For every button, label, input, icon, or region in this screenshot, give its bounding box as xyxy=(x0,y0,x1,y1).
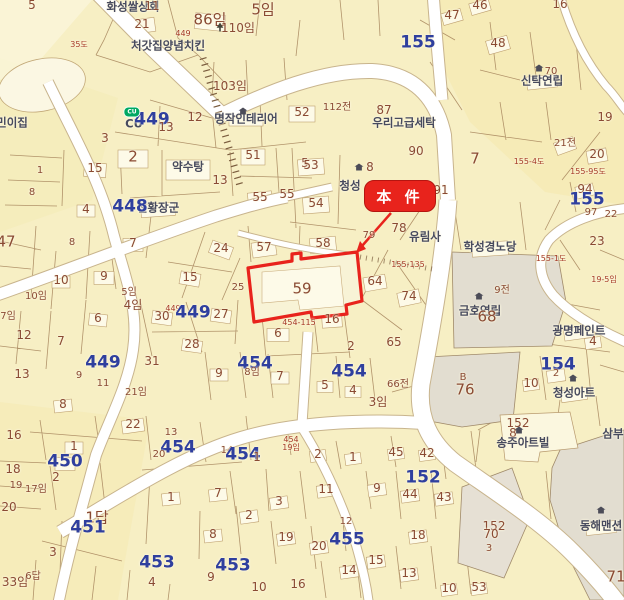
parcel-number-label: 16 xyxy=(6,429,21,441)
parcel-number-label: 8 xyxy=(69,238,75,248)
road-number-label: 35도 xyxy=(70,41,88,49)
house-icon xyxy=(569,375,578,382)
parcel-number-label: 17임 xyxy=(25,485,47,495)
parcel-number-label: 47 xyxy=(444,9,459,21)
parcel-number-label: 46 xyxy=(472,0,487,11)
parcel-number-label: 9전 xyxy=(494,286,510,296)
block-number-label: 455 xyxy=(329,532,365,549)
parcel-number-label: 20 xyxy=(153,450,166,460)
parcel-number-label: 1 xyxy=(167,491,175,503)
parcel-number-label: 9 xyxy=(373,482,381,494)
parcel-number-label: 28 xyxy=(184,338,199,350)
parcel-number-label: 79 xyxy=(363,231,376,241)
parcel-number-label: 70 xyxy=(545,67,558,77)
parcel-number-label: 2 xyxy=(314,448,322,460)
parcel-number-label: 59 xyxy=(292,282,311,297)
parcel-number-label: 19 xyxy=(278,531,293,543)
road-number-label: 19-5임 xyxy=(591,276,617,284)
parcel-number-label: 110임 xyxy=(221,22,255,34)
parcel-number-label: 23 xyxy=(589,235,604,247)
block-number-label: 450 xyxy=(47,454,83,471)
place-name-label: 삼부 xyxy=(602,428,623,440)
parcel-number-label: 16 xyxy=(552,0,567,10)
parcel-number-label: 8임 xyxy=(244,368,260,378)
place-name-label: 처갓집양념치킨 xyxy=(131,40,205,52)
parcel-number-label: 10 xyxy=(53,274,68,286)
parcel-number-label: 4 xyxy=(589,335,597,347)
parcel-number-label: 3 xyxy=(486,544,492,554)
parcel-number-label: 1 xyxy=(253,451,261,463)
parcel-number-label: 20 xyxy=(1,501,16,513)
parcel-number-label: 3 xyxy=(49,546,57,558)
parcel-number-label: 5 xyxy=(28,0,36,11)
parcel-number-label: 58 xyxy=(315,237,330,249)
parcel-number-label: 76 xyxy=(455,383,474,398)
parcel-number-label: 24 xyxy=(213,242,228,254)
parcel-number-label: 2 xyxy=(245,509,253,521)
parcel-number-label: 18 xyxy=(410,529,425,541)
parcel-number-label: 10 xyxy=(251,581,266,593)
parcel-number-label: 10 xyxy=(441,582,456,594)
road-number-label: 449 xyxy=(175,30,190,38)
parcel-number-label: 7 xyxy=(276,370,284,382)
parcel-number-label: 20 xyxy=(311,540,326,552)
block-number-label: 155 xyxy=(400,35,436,52)
parcel-number-label: 9 xyxy=(100,270,108,282)
parcel-number-label: 1 xyxy=(349,451,357,463)
parcel-number-label: 4 xyxy=(82,203,90,215)
parcel-number-label: 16 xyxy=(324,313,339,325)
parcel-number-label: 31 xyxy=(144,355,159,367)
parcel-number-label: 57 xyxy=(256,241,271,253)
parcel-number-label: 13 xyxy=(165,428,178,438)
parcel-number-label: 55 xyxy=(279,188,294,200)
parcel-number-label: 5 xyxy=(321,379,329,391)
place-name-label: 청성아트 xyxy=(553,387,595,399)
parcel-number-label: 6 xyxy=(274,327,282,339)
parcel-number-label: 71 xyxy=(606,570,624,585)
parcel-number-label: 11 xyxy=(97,379,110,389)
block-number-label: 449 xyxy=(175,305,211,322)
parcel-number-label: 8 xyxy=(366,161,374,173)
block-number-label: 449 xyxy=(85,355,121,372)
parcel-number-label: 8 xyxy=(209,528,217,540)
parcel-number-label: 2 xyxy=(553,369,559,379)
parcel-number-label: 30 xyxy=(154,310,169,322)
house-icon xyxy=(597,507,606,514)
parcel-number-label: 20 xyxy=(589,148,604,160)
parcel-number-label: 6답 xyxy=(25,572,41,582)
house-icon xyxy=(475,293,484,300)
parcel-number-label: 97 xyxy=(585,208,598,218)
place-name-label: 명작인테리어 xyxy=(214,113,277,125)
parcel-number-label: 51 xyxy=(245,149,260,161)
road-number-label: 454-115 xyxy=(282,319,315,327)
parcel-number-label: 12 xyxy=(16,329,31,341)
parcel-number-label: 53 xyxy=(471,581,486,593)
parcel-number-label: 78 xyxy=(391,222,406,234)
parcel-number-label: 3 xyxy=(275,495,283,507)
parcel-number-label: 1 xyxy=(37,166,43,176)
parcel-number-label: 42 xyxy=(419,447,434,459)
place-name-label: 민이집 xyxy=(0,117,28,129)
parcel-number-label: 6 xyxy=(94,312,102,324)
parcel-number-label: 48 xyxy=(490,37,505,49)
parcel-number-label: 66전 xyxy=(387,380,409,390)
block-number-label: 454 xyxy=(331,364,367,381)
block-number-label: 155 xyxy=(569,192,605,209)
road-number-label: 155-95도 xyxy=(570,168,606,176)
parcel-number-label: 9 xyxy=(207,571,215,583)
parcel-number-label: 7 xyxy=(129,237,137,249)
parcel-number-label: 19 xyxy=(597,111,612,123)
map-labels-layer: 화성쌀상회1152186임5임110임44935도처갓집양념치킨103임민이집C… xyxy=(0,0,624,600)
block-number-label: 152 xyxy=(405,470,441,487)
block-number-label: 451 xyxy=(70,520,106,537)
place-name-label: 우리고급세탁 xyxy=(372,117,435,129)
parcel-number-label: 5임 xyxy=(251,3,274,18)
parcel-number-label: 87 xyxy=(376,104,391,116)
parcel-number-label: 21임 xyxy=(125,388,147,398)
cadastral-map[interactable]: 화성쌀상회1152186임5임110임44935도처갓집양념치킨103임민이집C… xyxy=(0,0,624,600)
parcel-number-label: 2 xyxy=(347,340,355,352)
parcel-number-label: 10 xyxy=(523,377,538,389)
parcel-number-label: 11 xyxy=(144,0,159,12)
parcel-number-label: 64 xyxy=(367,275,382,287)
parcel-number-label: 45 xyxy=(388,446,403,458)
parcel-number-label: 70 xyxy=(483,528,498,540)
parcel-number-label: 15 xyxy=(182,271,197,283)
parcel-number-label: 15 xyxy=(87,162,102,174)
parcel-number-label: 8 xyxy=(59,398,67,410)
place-name-label: 동해맨션 xyxy=(580,520,622,532)
parcel-number-label: 3임 xyxy=(369,396,388,408)
place-name-label: 청성 xyxy=(339,180,360,192)
parcel-number-label: 103임 xyxy=(213,80,247,92)
parcel-number-label: 7 xyxy=(214,487,222,499)
place-name-label: 학성경노당 xyxy=(464,241,517,253)
parcel-number-label: 74 xyxy=(401,290,416,302)
parcel-number-label: 4임 xyxy=(124,299,143,311)
parcel-number-label: 10임 xyxy=(25,292,47,302)
parcel-number-label: 13 xyxy=(212,174,227,186)
parcel-number-label: 2 xyxy=(52,471,60,483)
road-number-label: 155-1도 xyxy=(536,255,567,263)
parcel-number-label: 18 xyxy=(5,463,20,475)
block-number-label: 453 xyxy=(139,555,175,572)
parcel-number-label: 27 xyxy=(213,308,228,320)
parcel-number-label: 4 xyxy=(148,576,156,588)
block-number-label: 448 xyxy=(112,199,148,216)
parcel-number-label: 22 xyxy=(125,418,140,430)
parcel-number-label: 21전 xyxy=(554,139,576,149)
parcel-number-label: 47 xyxy=(0,235,16,250)
parcel-number-label: 13 xyxy=(401,567,416,579)
parcel-number-label: 3 xyxy=(101,132,109,144)
subject-parcel-callout: 本 件 xyxy=(364,180,436,212)
parcel-number-label: 7 xyxy=(470,152,480,167)
parcel-number-label: 5임 xyxy=(121,288,137,298)
parcel-number-label: 55 xyxy=(252,191,267,203)
parcel-number-label: 52 xyxy=(294,106,309,118)
road-number-label: 19임 xyxy=(282,444,300,452)
parcel-number-label: 8 xyxy=(29,188,35,198)
parcel-number-label: 21 xyxy=(134,18,149,30)
block-number-label: 453 xyxy=(215,558,251,575)
place-name-label: 유림사 xyxy=(409,231,441,243)
place-name-label: 송주아트빌 xyxy=(497,437,550,449)
parcel-number-label: 2 xyxy=(128,150,138,165)
parcel-number-label: 90 xyxy=(408,145,423,157)
parcel-number-label: 11 xyxy=(318,483,333,495)
parcel-number-label: 43 xyxy=(436,491,451,503)
parcel-number-label: 112전 xyxy=(323,103,351,113)
parcel-number-label: 4 xyxy=(349,384,357,396)
parcel-number-label: 25 xyxy=(232,283,245,293)
parcel-number-label: 44 xyxy=(402,488,417,500)
parcel-number-label: 15 xyxy=(368,554,383,566)
parcel-number-label: 7임 xyxy=(0,312,16,322)
parcel-number-label: 65 xyxy=(386,336,401,348)
parcel-number-label: 7 xyxy=(57,335,65,347)
parcel-number-label: 14 xyxy=(341,564,356,576)
parcel-number-label: 9 xyxy=(76,371,82,381)
parcel-number-label: 13 xyxy=(14,368,29,380)
parcel-number-label: 22 xyxy=(605,210,618,220)
road-number-label: 155-135 xyxy=(391,261,424,269)
cu-icon: CU xyxy=(123,107,140,118)
parcel-number-label: 12 xyxy=(340,517,353,527)
house-icon xyxy=(355,164,364,171)
parcel-number-label: 68 xyxy=(477,310,496,325)
parcel-number-label: 1 xyxy=(70,440,78,452)
parcel-number-label: 9 xyxy=(215,367,223,379)
parcel-number-label: 53 xyxy=(303,159,318,171)
parcel-number-label: 13 xyxy=(158,121,173,133)
house-icon xyxy=(535,65,544,72)
parcel-number-label: 19 xyxy=(10,481,23,491)
parcel-number-label: 12 xyxy=(187,111,202,123)
parcel-number-label: 33임 xyxy=(2,576,28,588)
place-name-label: 약수탕 xyxy=(172,161,204,173)
road-number-label: 155-4도 xyxy=(514,158,545,166)
parcel-number-label: 16 xyxy=(290,578,305,590)
place-name-label: 광명페인트 xyxy=(553,325,606,337)
parcel-number-label: 54 xyxy=(308,197,323,209)
